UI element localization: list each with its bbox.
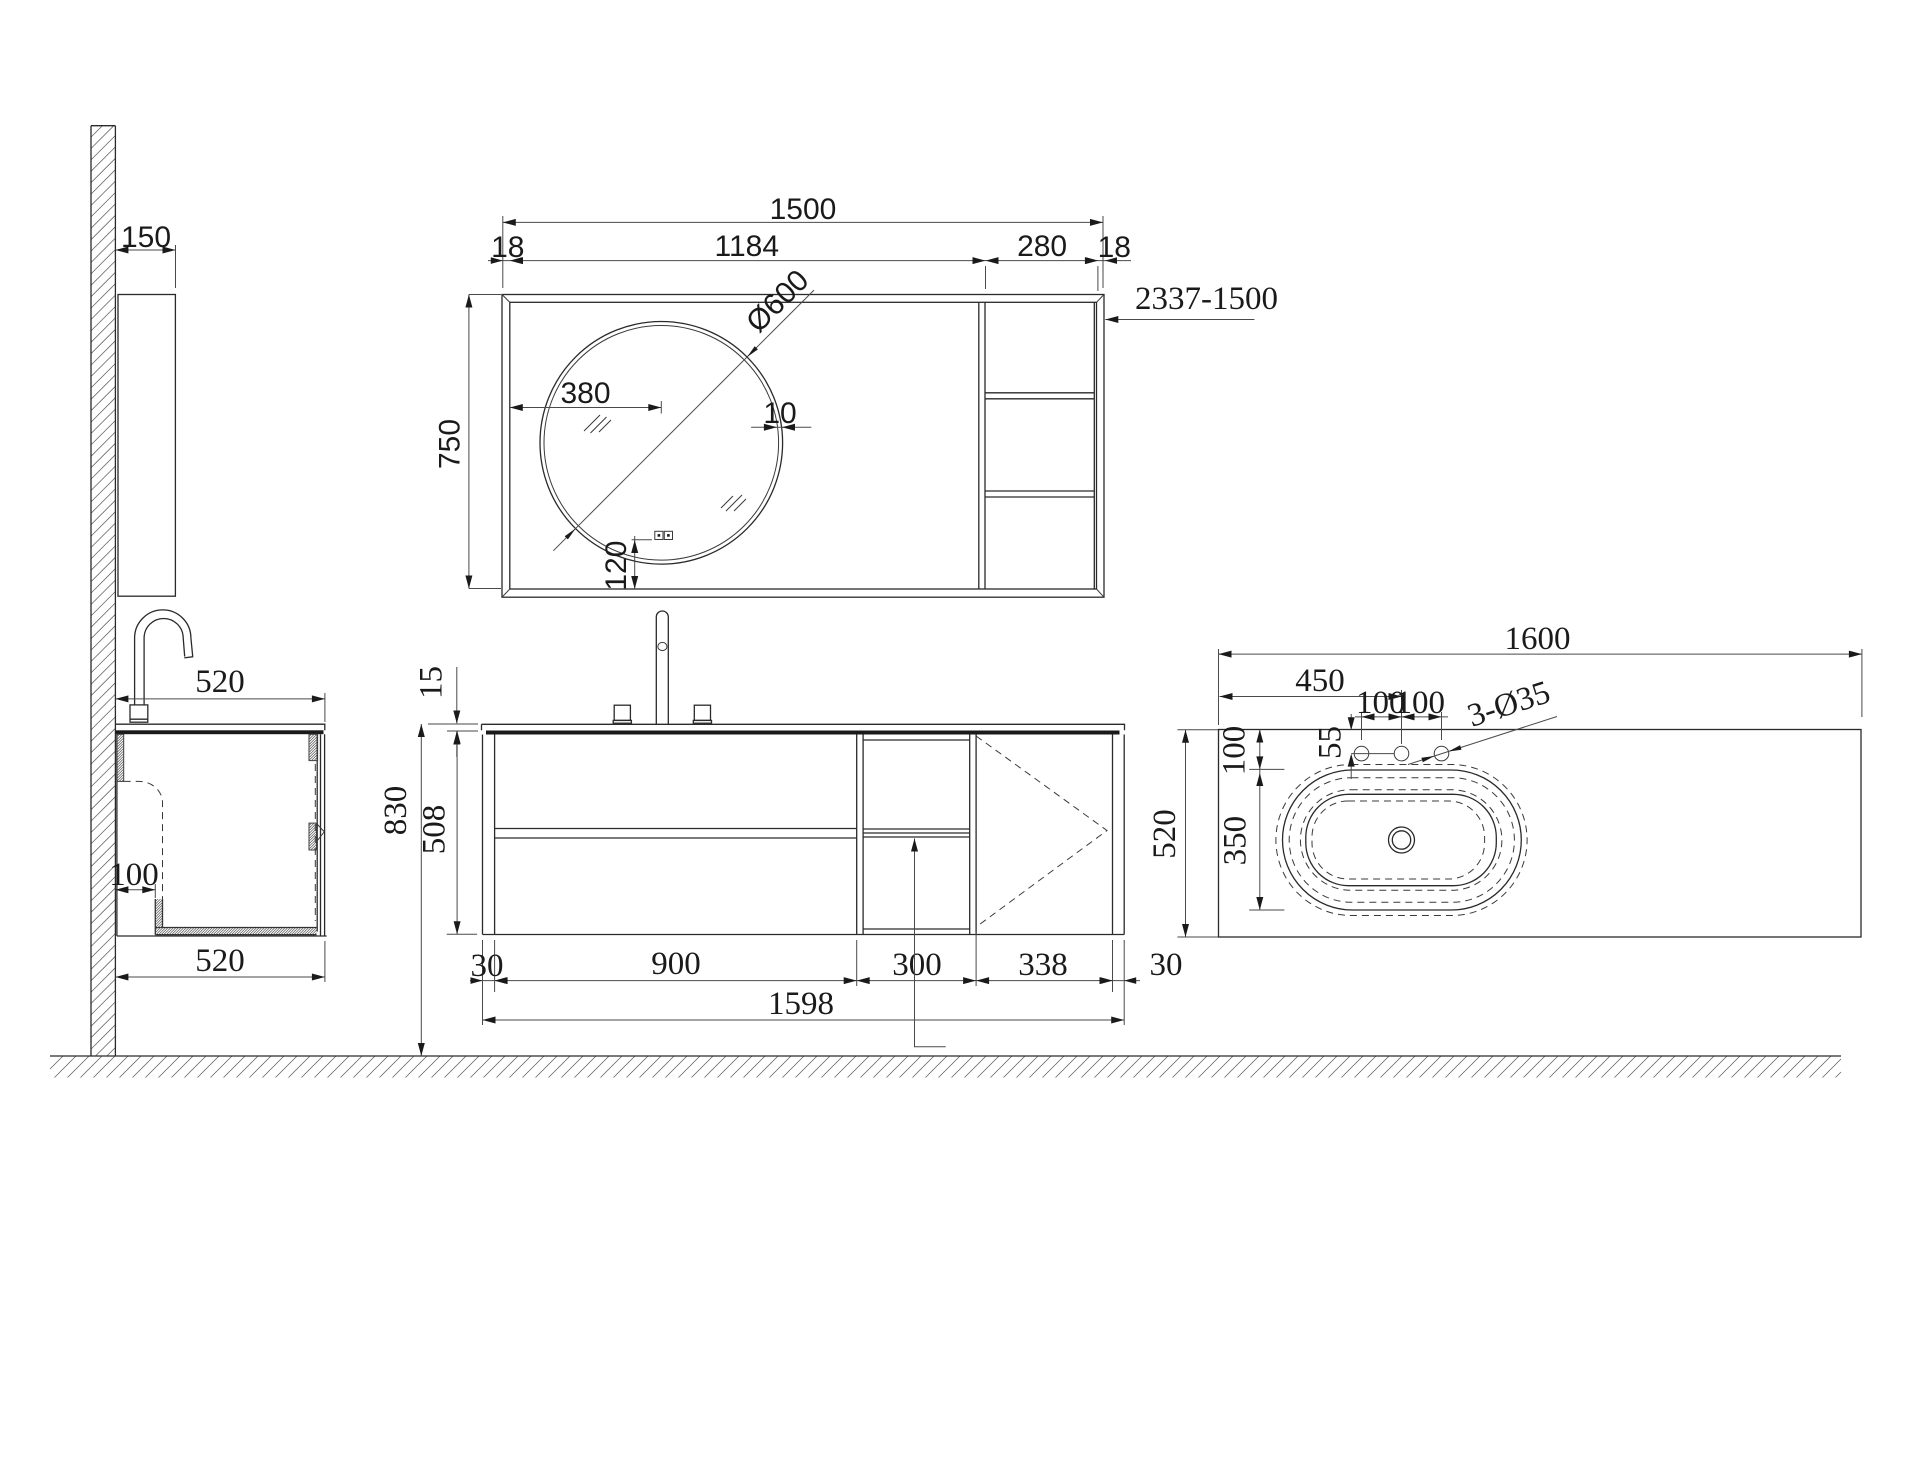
svg-text:338: 338 [1018, 947, 1068, 983]
svg-text:1598: 1598 [768, 986, 834, 1022]
svg-text:520: 520 [1147, 809, 1183, 859]
svg-text:1184: 1184 [715, 230, 780, 263]
svg-text:1500: 1500 [770, 193, 837, 226]
svg-text:150: 150 [121, 221, 171, 254]
svg-text:508: 508 [417, 805, 453, 855]
svg-text:100: 100 [1216, 726, 1252, 776]
svg-text:30: 30 [1150, 947, 1183, 983]
svg-text:100: 100 [1396, 685, 1446, 721]
svg-text:18: 18 [1098, 231, 1131, 264]
svg-text:1600: 1600 [1505, 621, 1571, 657]
svg-text:15: 15 [414, 666, 450, 699]
svg-text:520: 520 [195, 943, 245, 979]
svg-text:750: 750 [434, 419, 467, 469]
svg-text:350: 350 [1217, 816, 1253, 866]
svg-text:830: 830 [378, 786, 414, 836]
svg-text:300: 300 [892, 947, 942, 983]
svg-text:520: 520 [195, 664, 245, 700]
svg-text:18: 18 [491, 231, 524, 264]
svg-text:380: 380 [560, 377, 610, 410]
svg-text:280: 280 [1017, 230, 1067, 263]
svg-text:900: 900 [651, 946, 701, 982]
svg-text:2337-1500: 2337-1500 [1135, 281, 1278, 317]
svg-text:55: 55 [1313, 726, 1349, 759]
svg-text:30: 30 [471, 948, 504, 984]
svg-text:10: 10 [763, 397, 796, 430]
svg-text:100: 100 [109, 857, 159, 893]
svg-text:120: 120 [600, 541, 633, 591]
svg-text:450: 450 [1295, 663, 1345, 699]
